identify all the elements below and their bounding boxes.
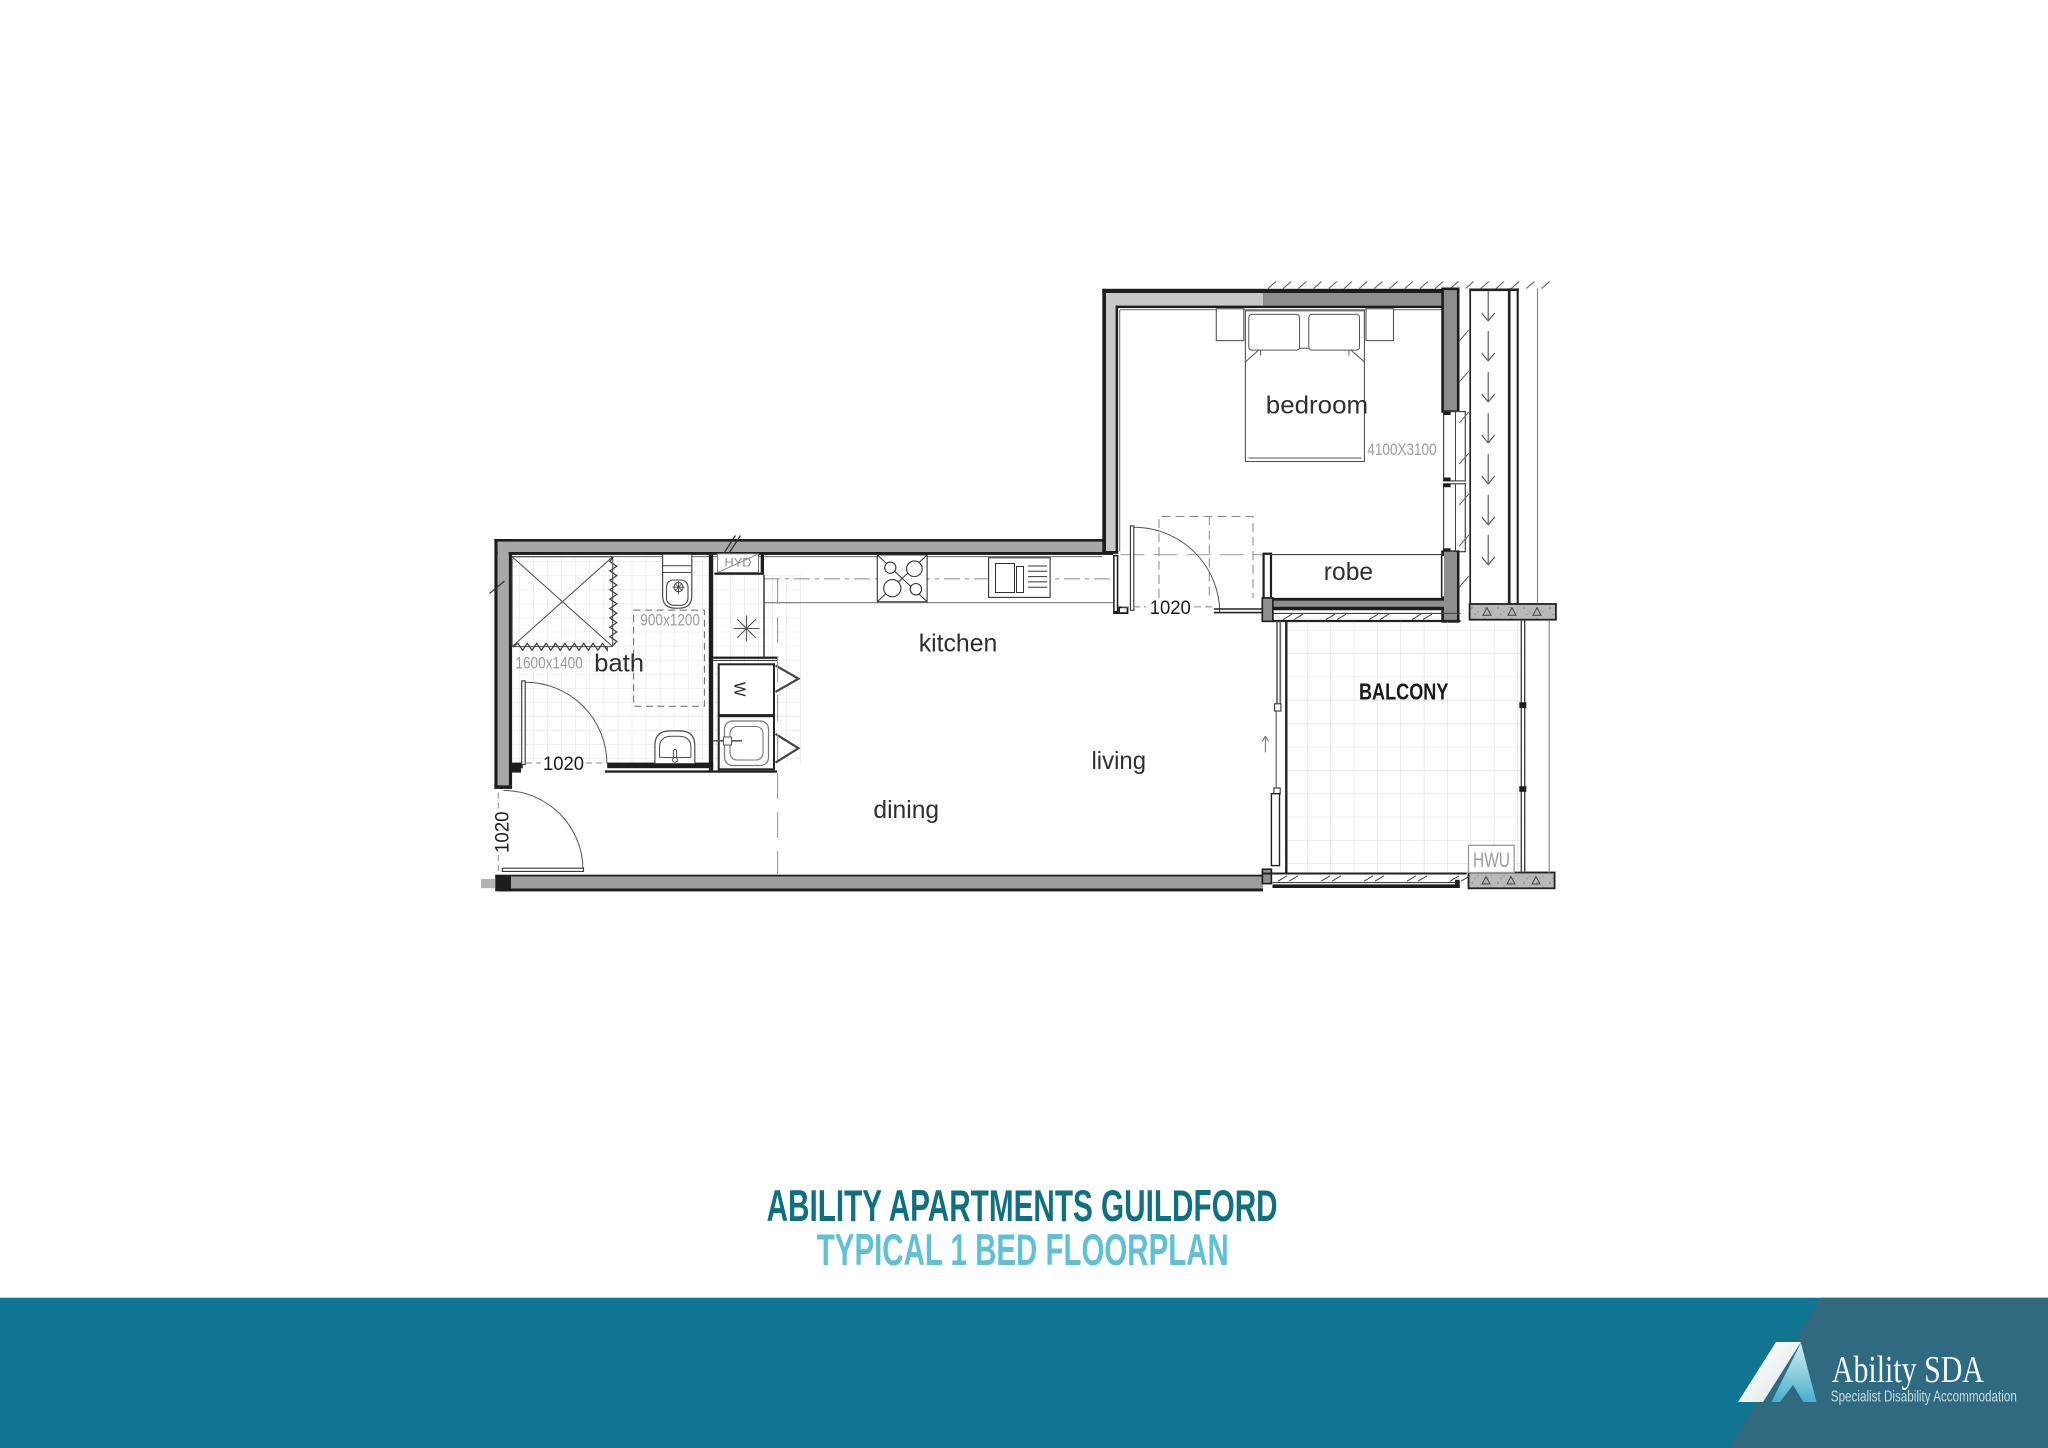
svg-text:dining: dining (873, 796, 939, 824)
svg-text:W: W (731, 682, 748, 697)
svg-text:1020: 1020 (492, 811, 514, 853)
svg-text:bedroom: bedroom (1266, 392, 1368, 420)
svg-text:Ability SDA: Ability SDA (1832, 1349, 1984, 1391)
svg-text:robe: robe (1324, 558, 1373, 586)
svg-text:4100X3100: 4100X3100 (1367, 441, 1436, 459)
svg-text:HWU: HWU (1473, 849, 1510, 872)
svg-text:BALCONY: BALCONY (1359, 679, 1449, 705)
svg-text:Specialist Disability Accommod: Specialist Disability Accommodation (1831, 1389, 2017, 1406)
svg-text:1020: 1020 (543, 753, 584, 775)
svg-text:HYD: HYD (725, 558, 752, 570)
svg-text:TYPICAL 1 BED FLOORPLAN: TYPICAL 1 BED FLOORPLAN (817, 1226, 1229, 1275)
svg-text:1020: 1020 (1150, 597, 1191, 619)
svg-text:ABILITY APARTMENTS GUILDFORD: ABILITY APARTMENTS GUILDFORD (767, 1182, 1278, 1231)
svg-text:living: living (1092, 747, 1147, 775)
svg-text:1600x1400: 1600x1400 (515, 655, 582, 673)
svg-text:kitchen: kitchen (919, 629, 998, 657)
svg-text:bath: bath (594, 649, 644, 677)
svg-text:900x1200: 900x1200 (640, 611, 700, 629)
